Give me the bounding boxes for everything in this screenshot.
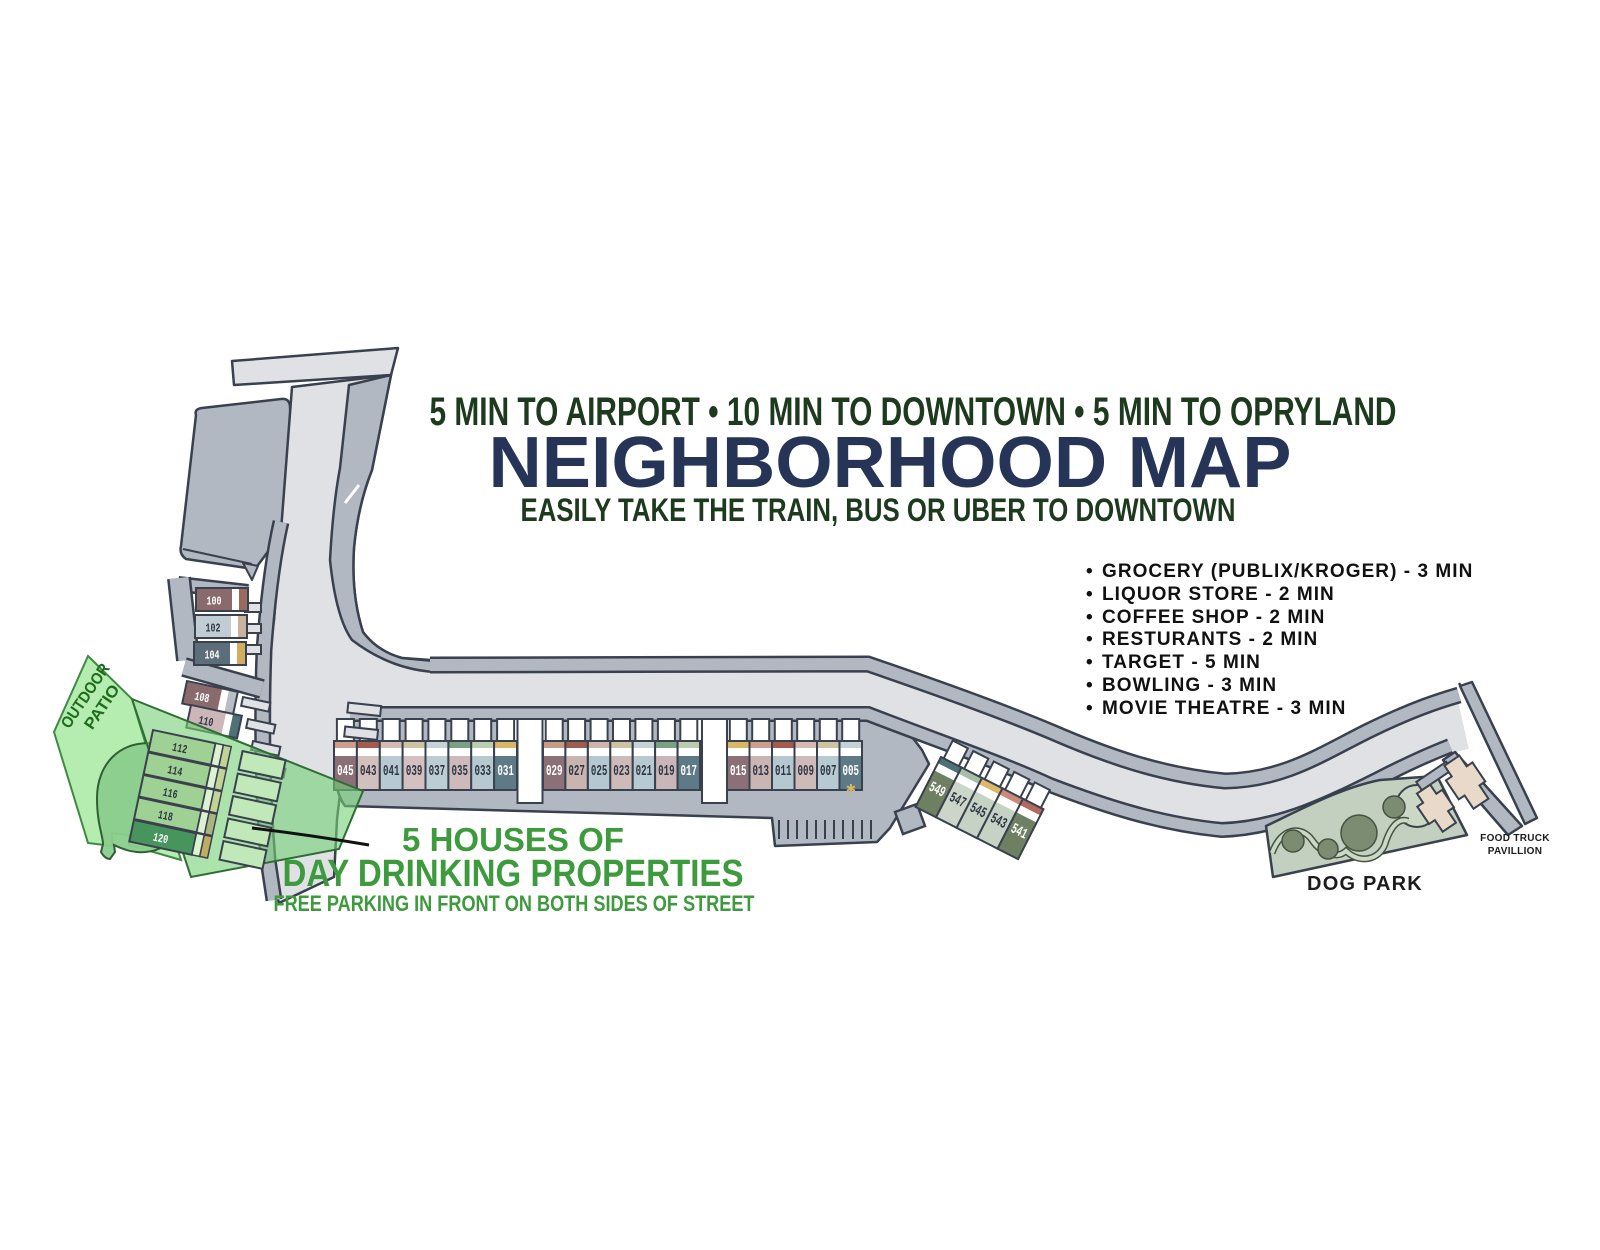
svg-text:039: 039 bbox=[406, 763, 423, 780]
svg-text:DAY DRINKING PROPERTIES: DAY DRINKING PROPERTIES bbox=[283, 853, 744, 895]
svg-text:RESTURANTS - 2 MIN: RESTURANTS - 2 MIN bbox=[1102, 629, 1318, 650]
svg-text:045: 045 bbox=[337, 763, 354, 780]
svg-text:TARGET - 5 MIN: TARGET - 5 MIN bbox=[1102, 652, 1261, 673]
svg-text:027: 027 bbox=[568, 763, 585, 780]
svg-text:GROCERY (PUBLIX/KROGER) - 3 MI: GROCERY (PUBLIX/KROGER) - 3 MIN bbox=[1102, 561, 1473, 582]
svg-text:019: 019 bbox=[658, 763, 675, 780]
svg-text:DOG PARK: DOG PARK bbox=[1307, 873, 1423, 895]
svg-text:009: 009 bbox=[798, 763, 815, 780]
svg-text:015: 015 bbox=[730, 763, 747, 780]
svg-text:•: • bbox=[1086, 698, 1093, 719]
svg-text:021: 021 bbox=[636, 763, 653, 780]
svg-text:005: 005 bbox=[843, 763, 860, 780]
svg-text:•: • bbox=[1086, 561, 1093, 582]
svg-text:033: 033 bbox=[474, 763, 491, 780]
svg-text:•: • bbox=[1086, 584, 1093, 605]
svg-text:104: 104 bbox=[205, 649, 220, 663]
svg-text:043: 043 bbox=[360, 763, 377, 780]
svg-text:FOOD TRUCK: FOOD TRUCK bbox=[1480, 833, 1550, 844]
svg-text:011: 011 bbox=[775, 763, 792, 780]
svg-text:MOVIE THEATRE - 3 MIN: MOVIE THEATRE - 3 MIN bbox=[1102, 698, 1346, 719]
svg-text:BOWLING - 3 MIN: BOWLING - 3 MIN bbox=[1102, 675, 1277, 696]
svg-text:023: 023 bbox=[613, 763, 630, 780]
svg-text:007: 007 bbox=[820, 763, 837, 780]
svg-text:✱: ✱ bbox=[846, 780, 856, 798]
svg-text:102: 102 bbox=[206, 622, 221, 636]
svg-text:FREE PARKING IN FRONT ON BOTH: FREE PARKING IN FRONT ON BOTH SIDES OF S… bbox=[274, 891, 755, 916]
svg-text:017: 017 bbox=[681, 763, 698, 780]
svg-text:LIQUOR STORE - 2 MIN: LIQUOR STORE - 2 MIN bbox=[1102, 584, 1335, 605]
svg-text:EASILY TAKE THE TRAIN, BUS OR: EASILY TAKE THE TRAIN, BUS OR UBER TO DO… bbox=[521, 492, 1236, 528]
svg-text:041: 041 bbox=[383, 763, 400, 780]
svg-text:037: 037 bbox=[429, 763, 446, 780]
svg-text:031: 031 bbox=[497, 763, 514, 780]
svg-text:035: 035 bbox=[452, 763, 469, 780]
svg-text:PAVILLION: PAVILLION bbox=[1488, 846, 1543, 857]
svg-text:•: • bbox=[1086, 607, 1093, 628]
svg-text:•: • bbox=[1086, 652, 1093, 673]
svg-text:NEIGHBORHOOD MAP: NEIGHBORHOOD MAP bbox=[489, 423, 1292, 503]
svg-text:025: 025 bbox=[591, 763, 608, 780]
svg-text:•: • bbox=[1086, 675, 1093, 696]
svg-text:•: • bbox=[1086, 629, 1093, 650]
svg-text:COFFEE SHOP - 2 MIN: COFFEE SHOP - 2 MIN bbox=[1102, 607, 1325, 628]
svg-text:013: 013 bbox=[753, 763, 770, 780]
svg-text:100: 100 bbox=[207, 595, 222, 609]
svg-text:029: 029 bbox=[546, 763, 563, 780]
